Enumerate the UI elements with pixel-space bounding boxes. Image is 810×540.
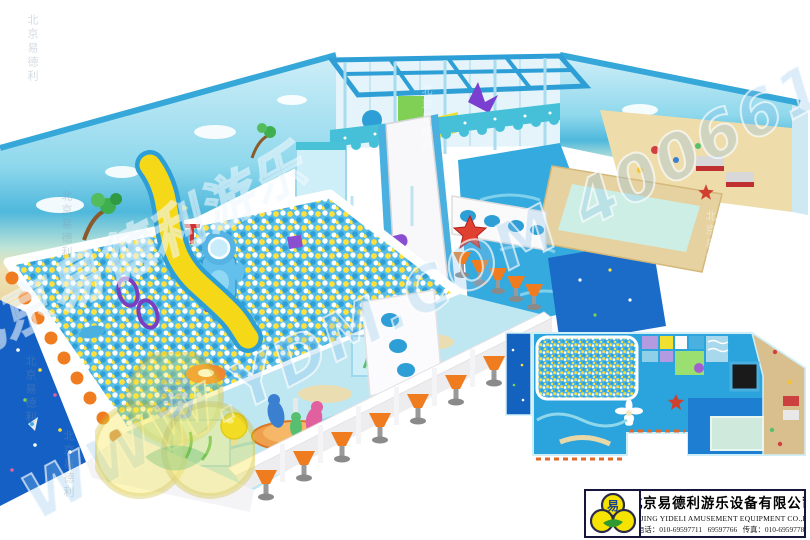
- main-render: [0, 0, 810, 540]
- beach-lounger: [696, 156, 724, 171]
- company-contact-line: 电话：010-69597711 69597766 传真：010-69597788: [641, 524, 804, 535]
- company-logo: 易: [586, 491, 641, 536]
- company-name-cn: 北京易德利游乐设备有限公司: [641, 493, 804, 513]
- plan-pool: [711, 417, 763, 450]
- plan-left-mat: [506, 333, 531, 415]
- playground-render-page: WWW.YDM.COM 4006610168 北京易德利游乐 北京易德利 北京易…: [0, 0, 810, 540]
- company-info-panel: 易 北京易德利游乐设备有限公司 BEIJING YIDELI AMUSEMENT…: [584, 489, 806, 538]
- logo-character: 易: [606, 499, 618, 513]
- trefoil-logo-icon: 易: [590, 493, 636, 535]
- plan-ball-pit: [537, 337, 637, 399]
- floor-plan: [506, 333, 805, 459]
- company-name-en: BEIJING YIDELI AMUSEMENT EQUIPMENT CO.,L…: [641, 514, 804, 523]
- plan-trampoline: [731, 363, 758, 390]
- yellow-ball: [221, 413, 247, 439]
- orange-ring-float: [186, 364, 226, 384]
- beach-lounger: [726, 172, 754, 187]
